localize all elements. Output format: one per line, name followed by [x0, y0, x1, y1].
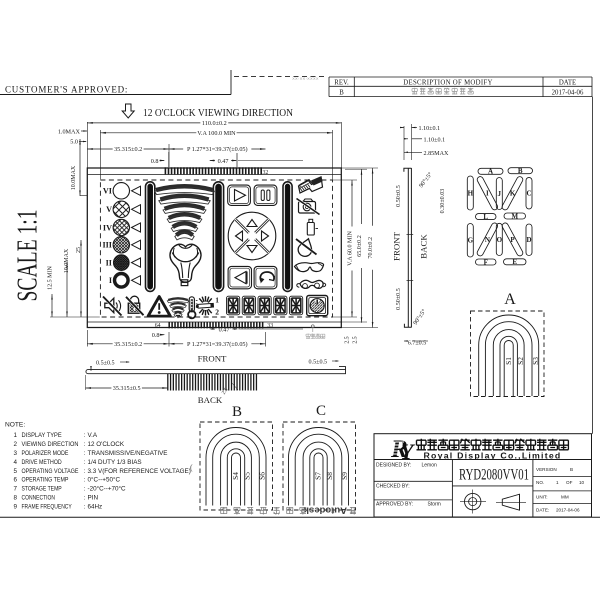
svg-text:64Hz: 64Hz — [88, 503, 103, 510]
svg-text:S6: S6 — [258, 472, 267, 480]
svg-text:35.315±0.2: 35.315±0.2 — [114, 341, 142, 348]
svg-text:REV.: REV. — [334, 79, 349, 86]
svg-text:V.A 60.0 MIN: V.A 60.0 MIN — [348, 231, 354, 266]
svg-text:2017-04-06: 2017-04-06 — [552, 90, 584, 97]
svg-text:FRAME FREQUENCY: FRAME FREQUENCY — [22, 503, 73, 510]
svg-text:P: P — [510, 236, 515, 244]
svg-text:OF: OF — [566, 480, 573, 485]
svg-text:CONNECTION: CONNECTION — [22, 495, 56, 502]
svg-text:1/4 DUTY 1/3 BIAS: 1/4 DUTY 1/3 BIAS — [88, 459, 142, 466]
svg-text:UNIT:: UNIT: — [536, 495, 547, 500]
svg-text:P 1.27*31=39.37(±0.05): P 1.27*31=39.37(±0.05) — [187, 146, 248, 153]
svg-text:S9: S9 — [340, 472, 349, 480]
svg-text:0.50±0.5: 0.50±0.5 — [396, 288, 402, 310]
svg-text::: : — [84, 450, 86, 457]
svg-text:B: B — [232, 404, 242, 420]
svg-text:OPERATING VOLTAGE: OPERATING VOLTAGE — [22, 468, 79, 475]
svg-text:S5: S5 — [243, 472, 252, 480]
svg-text:L: L — [483, 213, 488, 221]
svg-text:DISPLAY TYPE: DISPLAY TYPE — [22, 432, 62, 439]
svg-text:DESCRIPTION OF MODIFY: DESCRIPTION OF MODIFY — [403, 79, 492, 86]
svg-text:POLARIZER MODE: POLARIZER MODE — [22, 450, 69, 457]
svg-text:2.5: 2.5 — [345, 336, 351, 343]
svg-text:1: 1 — [556, 480, 559, 485]
svg-text::: : — [84, 459, 86, 466]
svg-text::: : — [84, 477, 86, 484]
svg-text:12 O'CLOCK: 12 O'CLOCK — [88, 441, 125, 448]
svg-text:0.8: 0.8 — [151, 158, 159, 165]
svg-text:B: B — [339, 90, 344, 97]
svg-text::: : — [84, 495, 86, 502]
svg-text:P 1.27*31=39.37(±0.05): P 1.27*31=39.37(±0.05) — [187, 341, 248, 348]
svg-text::: : — [84, 503, 86, 510]
svg-text:OPERATING TEMP: OPERATING TEMP — [22, 477, 69, 484]
svg-text:-20°C--+70°C: -20°C--+70°C — [88, 485, 127, 493]
svg-text:1: 1 — [215, 296, 219, 305]
svg-text:10.0MAX: 10.0MAX — [71, 165, 77, 190]
svg-text:APPROVED BY:: APPROVED BY: — [376, 502, 413, 508]
svg-text:6.7±0.5: 6.7±0.5 — [408, 341, 427, 347]
svg-text:35.315±0.2: 35.315±0.2 — [114, 146, 142, 153]
svg-text:Autodesk: Autodesk — [303, 505, 347, 516]
svg-text:SCALE 1:1: SCALE 1:1 — [13, 210, 44, 302]
svg-text::: : — [84, 432, 86, 439]
svg-text:1.10±0.1: 1.10±0.1 — [424, 137, 446, 143]
svg-text:8: 8 — [13, 495, 17, 502]
svg-text:10: 10 — [579, 480, 585, 485]
svg-text:V.A: V.A — [88, 432, 98, 439]
svg-text:Royal Display Co.,Limited: Royal Display Co.,Limited — [424, 450, 562, 460]
svg-text:J: J — [498, 190, 502, 198]
svg-text:B: B — [518, 167, 523, 175]
svg-text:7: 7 — [13, 486, 17, 493]
svg-text:H: H — [468, 189, 474, 197]
svg-text:VI: VI — [103, 187, 112, 196]
svg-text:2017-04-06: 2017-04-06 — [556, 508, 580, 513]
svg-text:4: 4 — [13, 459, 17, 466]
svg-text:32: 32 — [263, 170, 269, 176]
svg-text:0.5±0.5: 0.5±0.5 — [96, 361, 115, 367]
svg-text:PIN: PIN — [88, 495, 99, 502]
svg-text:IV: IV — [103, 223, 112, 232]
svg-text:9: 9 — [13, 503, 17, 510]
svg-text:S8: S8 — [325, 472, 334, 480]
svg-text:0.50±0.5: 0.50±0.5 — [396, 185, 402, 207]
svg-text:0.30±0.03: 0.30±0.03 — [440, 189, 446, 214]
svg-text:C: C — [316, 403, 326, 419]
svg-text:M: M — [511, 212, 518, 220]
svg-text:B: B — [570, 467, 573, 472]
svg-text:N: N — [485, 236, 490, 244]
svg-text:I: I — [486, 190, 489, 198]
svg-text:S4: S4 — [231, 472, 240, 480]
svg-text:2: 2 — [215, 308, 219, 317]
svg-text:S3: S3 — [531, 357, 540, 365]
svg-text:S1: S1 — [504, 357, 513, 365]
svg-text:0.47: 0.47 — [219, 326, 230, 333]
svg-text:F: F — [484, 258, 488, 266]
svg-text:DRIVE METHOD: DRIVE METHOD — [22, 459, 63, 466]
svg-text:Lemon: Lemon — [422, 463, 438, 469]
svg-text:A: A — [504, 291, 516, 308]
svg-text:1.0MAX: 1.0MAX — [58, 128, 81, 135]
svg-text:5: 5 — [13, 468, 17, 475]
svg-text:BACK: BACK — [198, 395, 223, 405]
svg-text:DESIGNED BY:: DESIGNED BY: — [376, 463, 411, 469]
svg-text:D: D — [526, 236, 531, 244]
svg-text:C: C — [526, 190, 531, 198]
svg-text:12 O'CLOCK VIEWING DIRECTION: 12 O'CLOCK VIEWING DIRECTION — [143, 108, 294, 119]
svg-text:Storm: Storm — [428, 502, 441, 508]
svg-text:K: K — [510, 190, 516, 198]
svg-text:0.47: 0.47 — [218, 158, 229, 165]
svg-text::: : — [84, 486, 86, 493]
svg-text:0.8: 0.8 — [152, 332, 160, 339]
svg-text:110.0±0.2: 110.0±0.2 — [202, 120, 227, 127]
svg-text:2.85MAX: 2.85MAX — [424, 151, 449, 157]
svg-text:CUSTOMER'S APPROVED:: CUSTOMER'S APPROVED: — [5, 85, 128, 95]
svg-text:FRONT: FRONT — [198, 354, 227, 364]
svg-text:12.5 MIN: 12.5 MIN — [48, 266, 54, 290]
svg-text:1: 1 — [13, 432, 17, 439]
svg-text:0.5±0.5: 0.5±0.5 — [309, 360, 328, 366]
svg-text:33: 33 — [267, 323, 273, 329]
svg-text:TRANSMISSIVE/NEGATIVE: TRANSMISSIVE/NEGATIVE — [88, 450, 168, 457]
svg-text:STORAGE TEMP: STORAGE TEMP — [22, 486, 62, 493]
svg-text:G: G — [468, 237, 474, 245]
svg-text:××·××·××××: ××·××·×××× — [292, 77, 319, 83]
svg-text:2: 2 — [13, 441, 17, 448]
svg-text:3.3 V(FOR REFERENCE VOLTAGE): 3.3 V(FOR REFERENCE VOLTAGE) — [88, 468, 191, 475]
svg-text:NOTE:: NOTE: — [5, 422, 25, 429]
svg-text:E: E — [512, 258, 517, 266]
svg-text:O: O — [497, 236, 503, 244]
svg-text:FRONT: FRONT — [392, 231, 402, 260]
svg-text:3: 3 — [13, 450, 17, 457]
svg-text:25: 25 — [76, 247, 82, 253]
svg-text::: : — [84, 468, 86, 475]
svg-text:DATE:: DATE: — [536, 508, 549, 513]
svg-text:65.0±0.2: 65.0±0.2 — [357, 235, 363, 257]
svg-text:6: 6 — [13, 477, 17, 484]
svg-text:V: V — [106, 205, 112, 214]
svg-text:10.0MAX: 10.0MAX — [64, 248, 70, 273]
svg-text:DATE: DATE — [559, 79, 576, 86]
svg-text:1.10±0.1: 1.10±0.1 — [419, 126, 441, 132]
svg-text:RYD2080VV01: RYD2080VV01 — [459, 467, 529, 484]
svg-text:MM: MM — [561, 495, 569, 500]
svg-text:A: A — [488, 168, 493, 176]
svg-text:35.315±0.5: 35.315±0.5 — [113, 386, 141, 392]
svg-text:S2: S2 — [516, 357, 525, 365]
svg-text:VIEWING DIRECTION: VIEWING DIRECTION — [22, 441, 79, 448]
svg-text:V.A 100.0 MIN: V.A 100.0 MIN — [197, 130, 236, 137]
svg-text:5.0: 5.0 — [70, 139, 78, 146]
svg-text:I: I — [109, 276, 112, 285]
svg-text:0°C--+50°C: 0°C--+50°C — [88, 476, 121, 484]
svg-text:64: 64 — [155, 323, 161, 329]
svg-text:NO.: NO. — [536, 480, 544, 485]
svg-text:II: II — [106, 258, 112, 267]
svg-text:2.5: 2.5 — [353, 336, 359, 343]
svg-text:VERSION: VERSION — [536, 467, 557, 472]
svg-text:BACK: BACK — [419, 234, 429, 259]
svg-text::: : — [84, 441, 86, 448]
svg-text:CHECKED BY:: CHECKED BY: — [376, 484, 410, 490]
svg-text:III: III — [102, 241, 112, 250]
svg-text:S7: S7 — [313, 472, 322, 480]
svg-text:70.0±0.2: 70.0±0.2 — [368, 237, 374, 259]
